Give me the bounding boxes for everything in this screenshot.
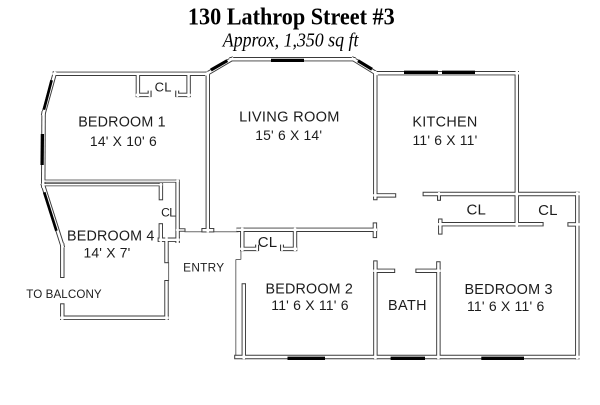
svg-text:BEDROOM 1: BEDROOM 1 [78, 114, 166, 130]
svg-text:KITCHEN: KITCHEN [412, 115, 477, 131]
svg-text:BEDROOM 3: BEDROOM 3 [465, 282, 553, 298]
svg-text:Approx, 1,350 sq ft: Approx, 1,350 sq ft [221, 30, 359, 51]
svg-text:BEDROOM 2: BEDROOM 2 [265, 281, 353, 297]
svg-text:CL: CL [538, 202, 558, 219]
svg-text:LIVING ROOM: LIVING ROOM [239, 110, 340, 126]
svg-text:TO BALCONY: TO BALCONY [26, 288, 102, 301]
svg-text:11' 6 X 11': 11' 6 X 11' [413, 132, 478, 148]
svg-text:15' 6 X 14': 15' 6 X 14' [255, 127, 322, 143]
svg-text:CL: CL [161, 206, 176, 220]
svg-text:14' X 7': 14' X 7' [83, 244, 130, 260]
svg-text:CL: CL [467, 201, 487, 218]
svg-text:BATH: BATH [388, 298, 427, 314]
svg-text:14' X 10' 6: 14' X 10' 6 [90, 133, 157, 149]
svg-text:11' 6 X 11' 6: 11' 6 X 11' 6 [467, 298, 544, 314]
svg-text:BEDROOM 4: BEDROOM 4 [67, 229, 155, 245]
svg-text:CL: CL [258, 234, 278, 251]
svg-text:CL: CL [155, 79, 172, 94]
svg-text:11' 6 X 11' 6: 11' 6 X 11' 6 [271, 297, 348, 313]
svg-text:ENTRY: ENTRY [183, 260, 224, 274]
svg-text:130 Lathrop Street #3: 130 Lathrop Street #3 [188, 4, 395, 31]
